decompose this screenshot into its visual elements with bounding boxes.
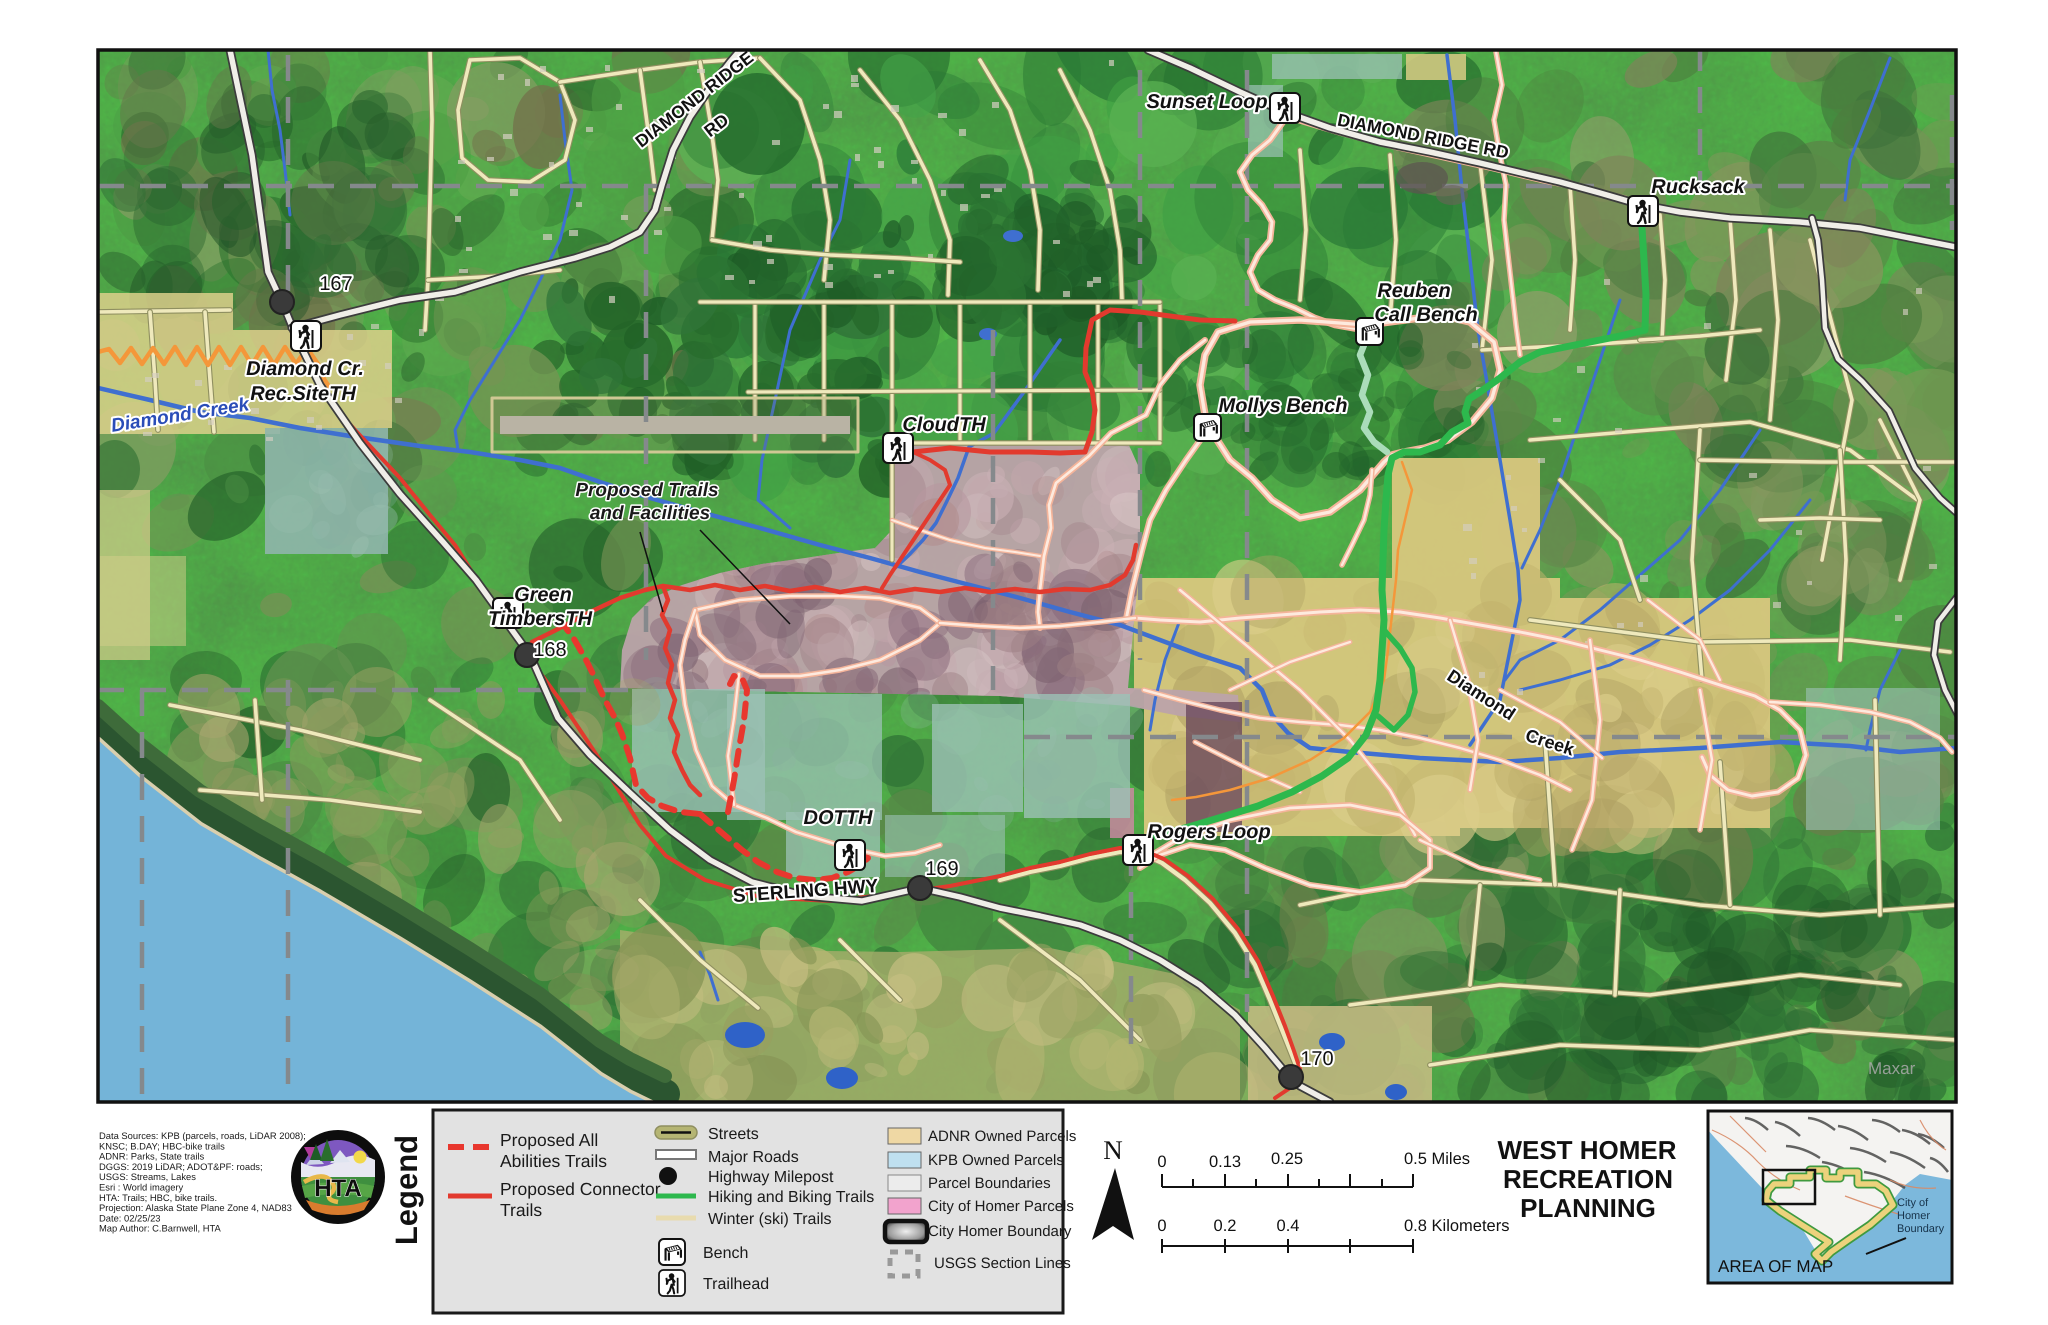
svg-text:HTA: HTA [314, 1175, 362, 1202]
svg-text:PLANNING: PLANNING [1520, 1193, 1656, 1223]
svg-text:Trailhead: Trailhead [703, 1276, 769, 1293]
svg-text:Proposed Trails: Proposed Trails [575, 480, 718, 501]
svg-text:0.2: 0.2 [1214, 1217, 1237, 1235]
svg-text:Map Author: C.Barnwell, HTA: Map Author: C.Barnwell, HTA [99, 1223, 221, 1234]
svg-text:Highway Milepost: Highway Milepost [708, 1169, 834, 1186]
svg-text:0.4: 0.4 [1277, 1217, 1300, 1235]
svg-text:Diamond Cr.: Diamond Cr. [246, 358, 364, 380]
svg-text:RECREATION: RECREATION [1503, 1164, 1673, 1194]
svg-text:Rec.SiteTH: Rec.SiteTH [250, 383, 356, 405]
svg-text:Legend: Legend [389, 1135, 424, 1245]
svg-text:Hiking and Biking Trails: Hiking and Biking Trails [708, 1189, 874, 1206]
svg-text:City of: City of [1897, 1197, 1929, 1209]
svg-text:WEST HOMER: WEST HOMER [1497, 1135, 1676, 1165]
svg-text:Abilities Trails: Abilities Trails [500, 1151, 607, 1171]
svg-text:Reuben: Reuben [1377, 280, 1450, 302]
svg-text:Rucksack: Rucksack [1651, 176, 1745, 198]
svg-text:0.25: 0.25 [1271, 1150, 1303, 1168]
svg-text:USGS Section Lines: USGS Section Lines [934, 1255, 1071, 1272]
svg-text:Proposed Connector: Proposed Connector [500, 1179, 661, 1199]
svg-text:AREA OF MAP: AREA OF MAP [1718, 1257, 1833, 1276]
svg-text:170: 170 [1300, 1048, 1333, 1070]
svg-text:168: 168 [533, 639, 566, 661]
svg-text:Trails: Trails [500, 1200, 542, 1220]
svg-text:0.13: 0.13 [1209, 1153, 1241, 1171]
svg-text:Mollys Bench: Mollys Bench [1219, 395, 1348, 417]
svg-text:Streets: Streets [708, 1126, 759, 1143]
svg-text:Parcel Boundaries: Parcel Boundaries [928, 1175, 1051, 1192]
svg-text:Winter (ski) Trails: Winter (ski) Trails [708, 1211, 832, 1228]
svg-text:CloudTH: CloudTH [902, 414, 986, 436]
svg-text:Boundary: Boundary [1897, 1223, 1945, 1235]
svg-text:N: N [1103, 1135, 1123, 1165]
svg-text:167: 167 [319, 273, 352, 295]
svg-text:0.8 Kilometers: 0.8 Kilometers [1404, 1217, 1509, 1235]
svg-text:ADNR Owned Parcels: ADNR Owned Parcels [928, 1128, 1076, 1145]
svg-text:Sunset Loop: Sunset Loop [1146, 91, 1267, 113]
svg-text:Homer: Homer [1897, 1210, 1930, 1222]
svg-text:0.5 Miles: 0.5 Miles [1404, 1150, 1470, 1168]
svg-text:TimbersTH: TimbersTH [488, 608, 593, 630]
svg-text:and Facilities: and Facilities [590, 503, 710, 524]
svg-text:169: 169 [925, 858, 958, 880]
svg-text:City Homer Boundary: City Homer Boundary [928, 1223, 1072, 1240]
svg-text:Rogers Loop: Rogers Loop [1147, 821, 1270, 843]
svg-text:Green: Green [514, 584, 572, 606]
svg-text:0: 0 [1157, 1153, 1166, 1171]
svg-text:City of Homer Parcels: City of Homer Parcels [928, 1198, 1074, 1215]
svg-text:Proposed All: Proposed All [500, 1130, 598, 1150]
svg-text:DOTTH: DOTTH [804, 807, 873, 829]
svg-text:Bench: Bench [703, 1245, 748, 1262]
svg-text:Maxar: Maxar [1868, 1059, 1916, 1078]
svg-text:Major Roads: Major Roads [708, 1149, 799, 1166]
svg-text:Call Bench: Call Bench [1374, 304, 1477, 326]
svg-text:0: 0 [1157, 1217, 1166, 1235]
svg-text:KPB Owned Parcels: KPB Owned Parcels [928, 1152, 1064, 1169]
